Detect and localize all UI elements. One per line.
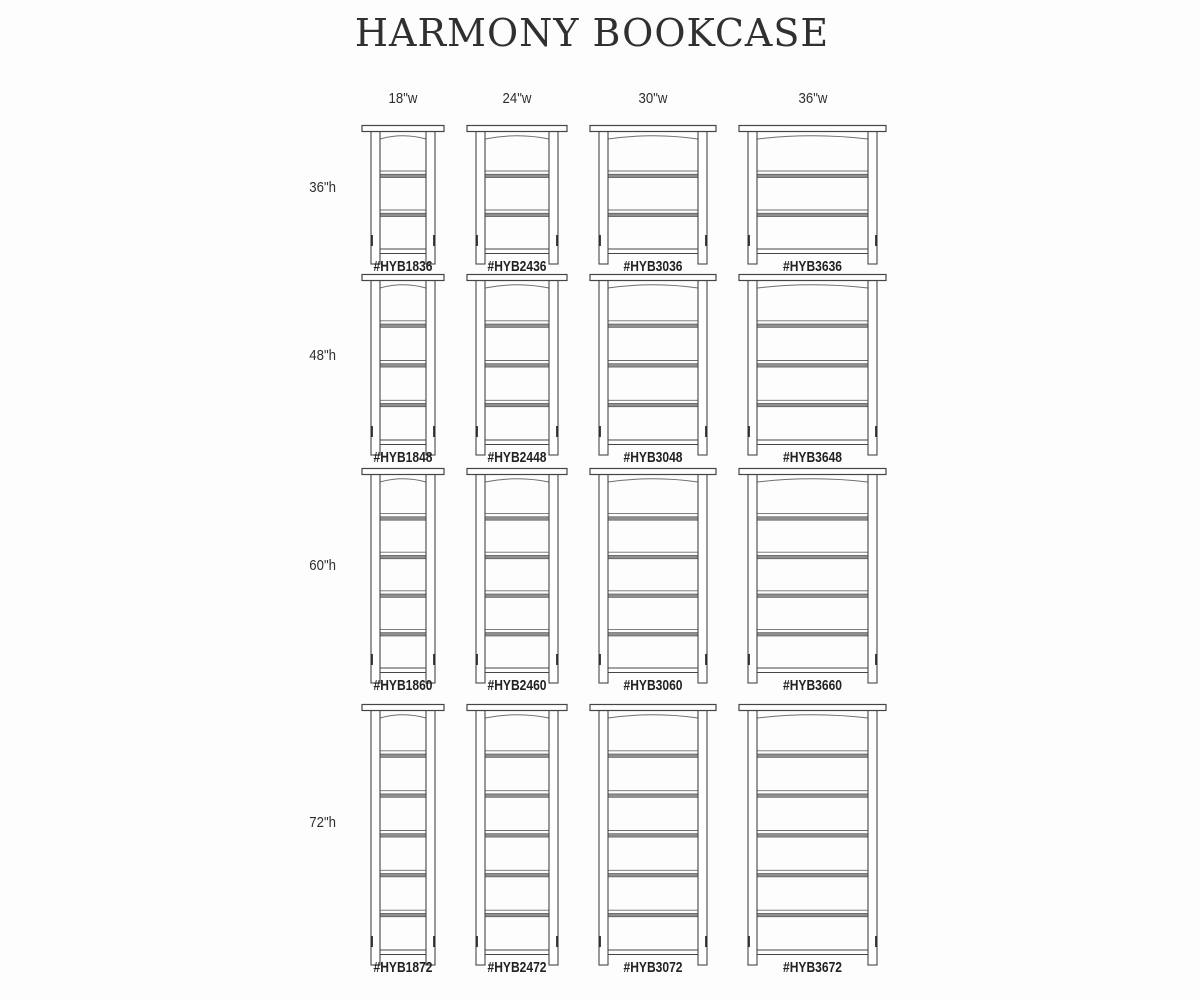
shelf	[608, 517, 698, 520]
shelf	[485, 517, 549, 520]
right-stile	[549, 475, 558, 684]
arch-rail	[485, 715, 549, 718]
bookcase-hyb3636: #HYB3636	[738, 125, 887, 284]
right-stile	[549, 711, 558, 966]
top-board	[362, 126, 444, 132]
left-stile	[599, 475, 608, 684]
shelf	[757, 874, 868, 877]
shelf	[608, 324, 698, 327]
top-board	[467, 275, 567, 281]
bottom-shelf	[380, 440, 426, 445]
bookcase-hyb3672: #HYB3672	[738, 704, 887, 985]
top-board	[590, 469, 716, 475]
bottom-shelf	[380, 950, 426, 955]
shelf	[380, 754, 426, 757]
bookcase-hyb1848: #HYB1848	[361, 274, 445, 475]
arch-rail	[380, 479, 426, 482]
model-label: #HYB1848	[374, 449, 433, 466]
shelf	[757, 834, 868, 837]
shelf	[485, 174, 549, 177]
bottom-shelf	[608, 440, 698, 445]
shelf	[608, 594, 698, 597]
shelf	[485, 913, 549, 916]
model-label: #HYB3072	[624, 959, 683, 976]
bookcase-hyb1872: #HYB1872	[361, 704, 445, 985]
row-label-36h: 36"h	[280, 179, 336, 196]
arch-rail	[608, 285, 698, 288]
bottom-shelf	[485, 249, 549, 254]
shelf	[485, 794, 549, 797]
left-stile	[476, 711, 485, 966]
right-stile	[868, 711, 877, 966]
model-label: #HYB3048	[624, 449, 683, 466]
bottom-shelf	[485, 950, 549, 955]
arch-rail	[380, 136, 426, 139]
arch-rail	[485, 285, 549, 288]
left-stile	[748, 475, 757, 684]
bookcase-hyb3072: #HYB3072	[589, 704, 717, 985]
arch-rail	[757, 479, 868, 482]
shelf	[757, 403, 868, 406]
top-board	[362, 705, 444, 711]
bottom-shelf	[608, 249, 698, 254]
shelf	[485, 555, 549, 558]
arch-rail	[380, 285, 426, 288]
shelf	[380, 633, 426, 636]
shelf	[757, 324, 868, 327]
row-label-48h: 48"h	[280, 347, 336, 364]
shelf	[485, 213, 549, 216]
column-header-24w: 24"w	[473, 90, 561, 107]
top-board	[590, 275, 716, 281]
right-stile	[426, 475, 435, 684]
top-board	[467, 126, 567, 132]
shelf	[380, 213, 426, 216]
shelf	[608, 174, 698, 177]
shelf	[380, 403, 426, 406]
shelf	[380, 517, 426, 520]
model-label: #HYB1872	[374, 959, 433, 976]
top-board	[590, 126, 716, 132]
shelf	[485, 834, 549, 837]
shelf	[485, 324, 549, 327]
shelf	[380, 364, 426, 367]
model-label: #HYB3672	[783, 959, 842, 976]
arch-rail	[608, 136, 698, 139]
right-stile	[698, 475, 707, 684]
bottom-shelf	[757, 249, 868, 254]
shelf	[757, 754, 868, 757]
bookcase-hyb2436: #HYB2436	[466, 125, 568, 284]
shelf	[608, 834, 698, 837]
right-stile	[868, 475, 877, 684]
page-title: HARMONY BOOKCASE	[0, 11, 1184, 55]
model-label: #HYB3060	[624, 677, 683, 694]
arch-rail	[757, 285, 868, 288]
shelf	[380, 913, 426, 916]
shelf	[608, 403, 698, 406]
top-board	[739, 126, 886, 132]
bookcase-hyb2472: #HYB2472	[466, 704, 568, 985]
shelf	[757, 633, 868, 636]
model-label: #HYB3036	[624, 258, 683, 275]
model-label: #HYB2472	[488, 959, 547, 976]
shelf	[608, 555, 698, 558]
model-label: #HYB1836	[374, 258, 433, 275]
shelf	[608, 754, 698, 757]
shelf	[608, 794, 698, 797]
right-stile	[698, 711, 707, 966]
arch-rail	[757, 136, 868, 139]
bookcase-hyb2460: #HYB2460	[466, 468, 568, 703]
top-board	[467, 705, 567, 711]
arch-rail	[380, 715, 426, 718]
shelf	[757, 213, 868, 216]
top-board	[739, 705, 886, 711]
model-label: #HYB3636	[783, 258, 842, 275]
shelf	[757, 913, 868, 916]
bottom-shelf	[757, 440, 868, 445]
shelf	[757, 174, 868, 177]
bottom-shelf	[757, 668, 868, 673]
shelf	[757, 794, 868, 797]
catalog-page: HARMONY BOOKCASE 18"w24"w30"w36"w36"h48"…	[0, 0, 1200, 1000]
bookcase-hyb1860: #HYB1860	[361, 468, 445, 703]
shelf	[380, 594, 426, 597]
bottom-shelf	[485, 668, 549, 673]
bookcase-hyb3048: #HYB3048	[589, 274, 717, 475]
column-header-30w: 30"w	[609, 90, 697, 107]
shelf	[485, 364, 549, 367]
bookcase-hyb1836: #HYB1836	[361, 125, 445, 284]
bookcase-hyb3036: #HYB3036	[589, 125, 717, 284]
model-label: #HYB3648	[783, 449, 842, 466]
shelf	[380, 174, 426, 177]
column-header-18w: 18"w	[359, 90, 447, 107]
shelf	[485, 633, 549, 636]
shelf	[380, 324, 426, 327]
left-stile	[371, 711, 380, 966]
top-board	[739, 275, 886, 281]
shelf	[485, 874, 549, 877]
shelf	[608, 633, 698, 636]
bookcase-hyb3648: #HYB3648	[738, 274, 887, 475]
left-stile	[748, 711, 757, 966]
right-stile	[426, 711, 435, 966]
top-board	[590, 705, 716, 711]
model-label: #HYB3660	[783, 677, 842, 694]
model-label: #HYB2436	[488, 258, 547, 275]
left-stile	[371, 475, 380, 684]
shelf	[380, 555, 426, 558]
row-label-60h: 60"h	[280, 557, 336, 574]
top-board	[362, 275, 444, 281]
bookcase-hyb3060: #HYB3060	[589, 468, 717, 703]
bottom-shelf	[380, 668, 426, 673]
arch-rail	[485, 136, 549, 139]
arch-rail	[757, 715, 868, 718]
bookcase-hyb2448: #HYB2448	[466, 274, 568, 475]
bookcase-hyb3660: #HYB3660	[738, 468, 887, 703]
model-label: #HYB2448	[488, 449, 547, 466]
shelf	[380, 794, 426, 797]
shelf	[380, 834, 426, 837]
row-label-72h: 72"h	[280, 814, 336, 831]
arch-rail	[485, 479, 549, 482]
shelf	[485, 754, 549, 757]
shelf	[380, 874, 426, 877]
column-header-36w: 36"w	[769, 90, 857, 107]
bottom-shelf	[608, 668, 698, 673]
shelf	[757, 555, 868, 558]
shelf	[757, 517, 868, 520]
shelf	[608, 213, 698, 216]
shelf	[757, 364, 868, 367]
shelf	[485, 403, 549, 406]
shelf	[757, 594, 868, 597]
bottom-shelf	[757, 950, 868, 955]
bottom-shelf	[380, 249, 426, 254]
bottom-shelf	[608, 950, 698, 955]
top-board	[467, 469, 567, 475]
top-board	[362, 469, 444, 475]
arch-rail	[608, 715, 698, 718]
shelf	[608, 364, 698, 367]
left-stile	[599, 711, 608, 966]
top-board	[739, 469, 886, 475]
bottom-shelf	[485, 440, 549, 445]
arch-rail	[608, 479, 698, 482]
model-label: #HYB1860	[374, 677, 433, 694]
left-stile	[476, 475, 485, 684]
model-label: #HYB2460	[488, 677, 547, 694]
shelf	[608, 913, 698, 916]
shelf	[608, 874, 698, 877]
shelf	[485, 594, 549, 597]
